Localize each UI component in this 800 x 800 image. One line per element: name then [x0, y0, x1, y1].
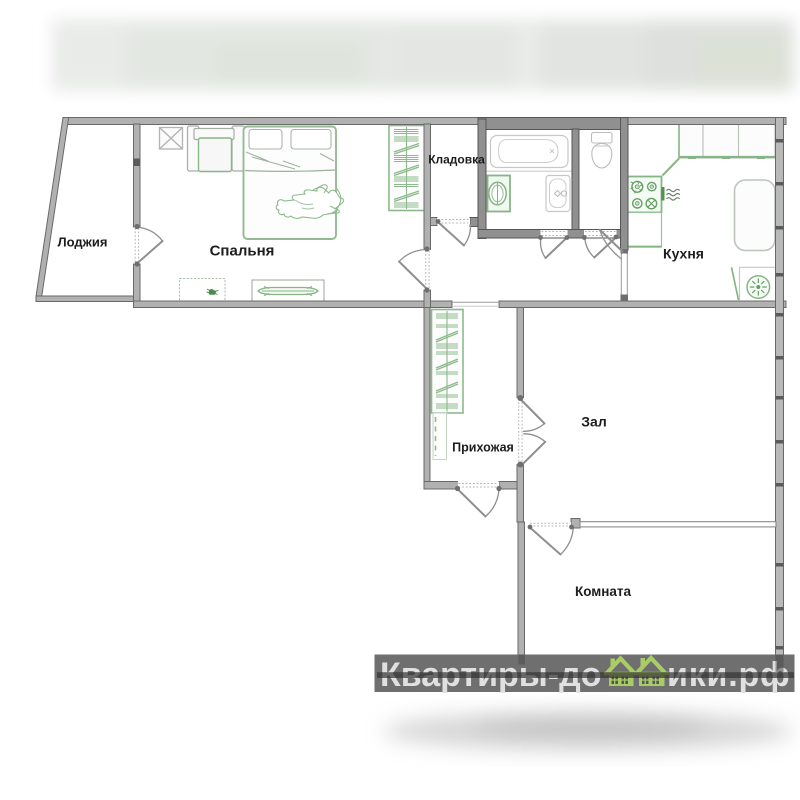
- svg-text:Прихожая: Прихожая: [452, 441, 514, 455]
- svg-text:Комната: Комната: [575, 584, 632, 599]
- svg-text:Спальня: Спальня: [210, 243, 275, 260]
- svg-text:Кладовка: Кладовка: [428, 153, 485, 167]
- svg-text:Лоджия: Лоджия: [58, 235, 108, 250]
- svg-text:Зал: Зал: [581, 414, 606, 430]
- svg-text:Кухня: Кухня: [663, 246, 704, 262]
